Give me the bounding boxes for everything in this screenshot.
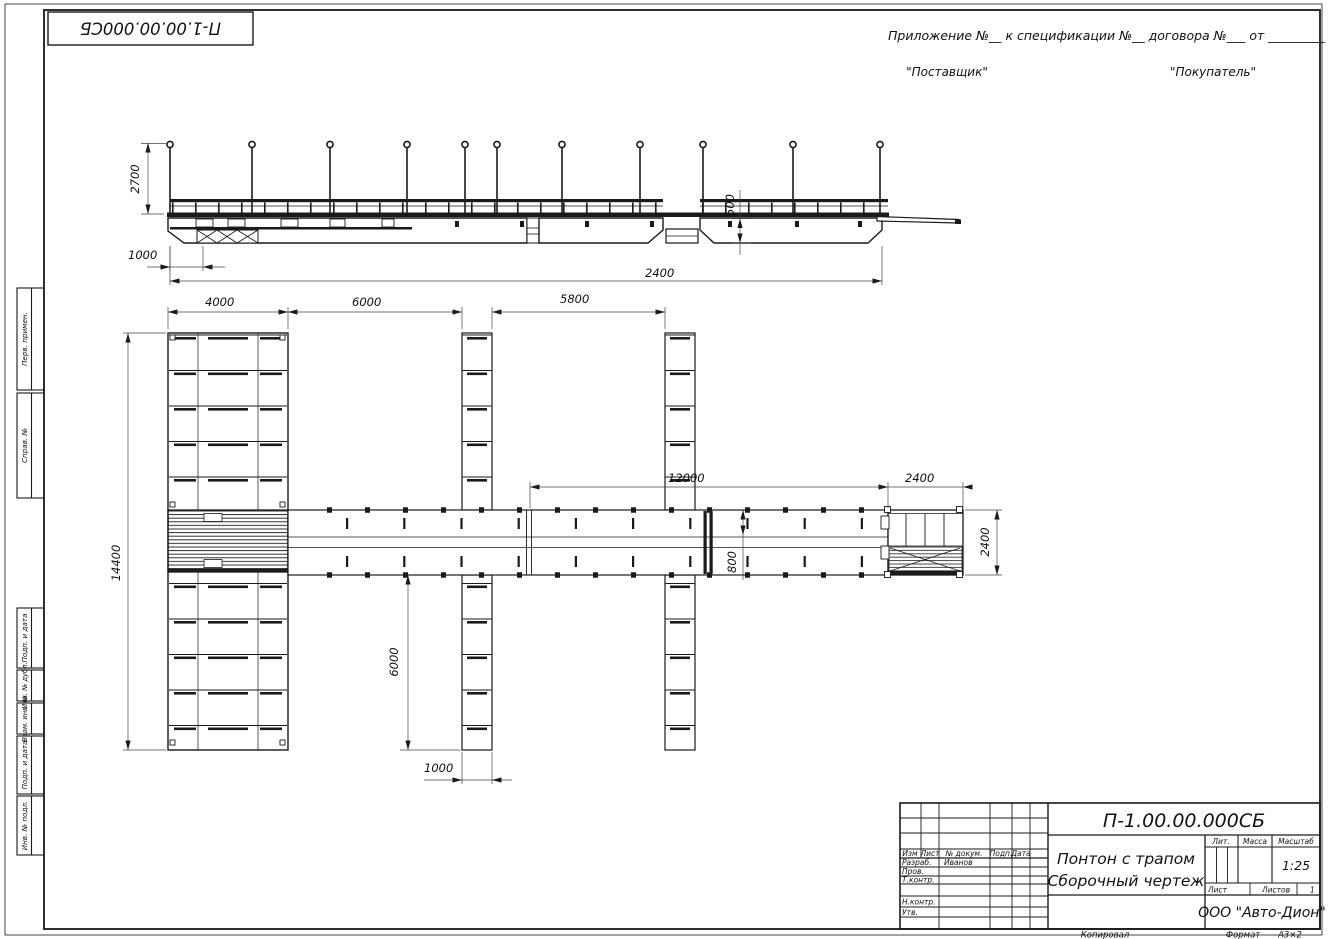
tb-name-line2: Сборочный чертеж [1048, 872, 1205, 890]
handrail [170, 199, 888, 208]
tb-col-docnum: № докум. [945, 849, 983, 858]
dim-plan-12000: 12000 [668, 471, 705, 485]
appendix-line: Приложение №__ к спецификации №__ догово… [888, 28, 1325, 43]
dim-elevation-2400: 2400 [645, 266, 674, 280]
dim-plan-4000: 4000 [205, 295, 234, 309]
tb-row-nkontr: Н.контр. [902, 898, 936, 907]
tb-masshtab-label: Масштаб [1278, 837, 1314, 846]
footer-format-label: Формат [1226, 931, 1262, 939]
tb-scale-value: 1:25 [1282, 858, 1310, 873]
tb-lit-label: Лит. [1211, 837, 1229, 846]
dim-plan-6000: 6000 [352, 295, 381, 309]
footer-kopiroval: Копировал [1081, 931, 1130, 939]
tb-listov-label: Листов [1261, 886, 1290, 895]
margin-stamp-label: Подп. и дата [20, 741, 29, 790]
footer-format-value: А3×2 [1277, 931, 1302, 939]
tb-name-line1: Понтон с трапом [1057, 850, 1195, 868]
margin-stamp-perv-primen: Перв. примен. [17, 288, 44, 390]
dim-plan-6000-bottom: 6000 [387, 647, 401, 676]
dim-plan-14400: 14400 [109, 545, 123, 582]
scissor-lift [197, 230, 258, 243]
appendix-header: Приложение №__ к спецификации №__ догово… [888, 28, 1325, 79]
margin-stamp-inv-podl: Инв. № подл. [17, 796, 44, 855]
corner-doc-number-box: П-1.00.00.000СБ [48, 12, 253, 45]
dim-plan-2400-right: 2400 [978, 527, 992, 556]
tb-doc-number: П-1.00.00.000СБ [1103, 810, 1265, 832]
margin-stamp-vzam-inv: Взам. инв. № [17, 695, 44, 741]
dim-elevation-500: 500 [723, 194, 737, 216]
tb-razrab-name: Иванов [944, 858, 973, 867]
access-ramp-hatch [168, 510, 288, 573]
margin-stamp-podp-i-data-2: Подп. и дата [17, 736, 44, 794]
margin-stamp-label: Справ. № [20, 428, 29, 463]
gangway-profile [877, 217, 961, 225]
end-platform [881, 507, 963, 578]
buyer-label: "Покупатель" [1170, 65, 1256, 79]
dim-plan-2400-top: 2400 [905, 471, 934, 485]
dim-elevation-1000: 1000 [128, 248, 157, 262]
margin-stamp-podp-i-data-1: Подп. и дата [17, 608, 44, 668]
tb-col-data: Дата [1010, 849, 1031, 858]
tb-massa-label: Масса [1243, 837, 1267, 846]
tb-col-podp: Подп. [990, 849, 1013, 858]
title-block: П-1.00.00.000СБ Понтон с трапом Сборочны… [900, 803, 1326, 929]
tb-listov-value: 1 [1310, 886, 1315, 895]
margin-stamp-sprav-no: Справ. № [17, 393, 44, 498]
corner-doc-number: П-1.00.00.000СБ [80, 19, 221, 38]
tb-company: ООО "Авто-Дион" [1198, 905, 1326, 921]
tb-row-razrab: Разраб. [902, 858, 931, 867]
margin-stamp-label: Взам. инв. № [21, 695, 29, 741]
dim-plan-5800: 5800 [560, 292, 589, 306]
margin-stamp-label: Подп. и дата [20, 614, 29, 663]
margin-stamps: Перв. примен. Справ. № Подп. и дата Инв.… [17, 288, 44, 855]
walkway [288, 510, 888, 575]
dim-elevation-2700: 2700 [128, 164, 142, 193]
tb-row-utv: Утв. [902, 908, 918, 917]
margin-stamp-label: Перв. примен. [20, 312, 29, 366]
supplier-label: "Поставщик" [906, 65, 988, 79]
dim-plan-1000-bottom: 1000 [424, 761, 453, 775]
tb-list-label: Лист [1207, 886, 1228, 895]
tb-col-list: Лист [919, 849, 940, 858]
plan-view [168, 333, 963, 750]
tb-col-izm: Изм [902, 849, 918, 858]
deck-band [167, 213, 889, 218]
drawing-sheet: Перв. примен. Справ. № Подп. и дата Инв.… [0, 0, 1328, 939]
pontoon-hull-profile [168, 218, 882, 243]
tb-row-tkontr: Т.контр. [902, 876, 935, 885]
elevation-view [167, 141, 961, 243]
margin-stamp-label: Инв. № подл. [20, 801, 29, 851]
dim-plan-800: 800 [725, 551, 739, 573]
